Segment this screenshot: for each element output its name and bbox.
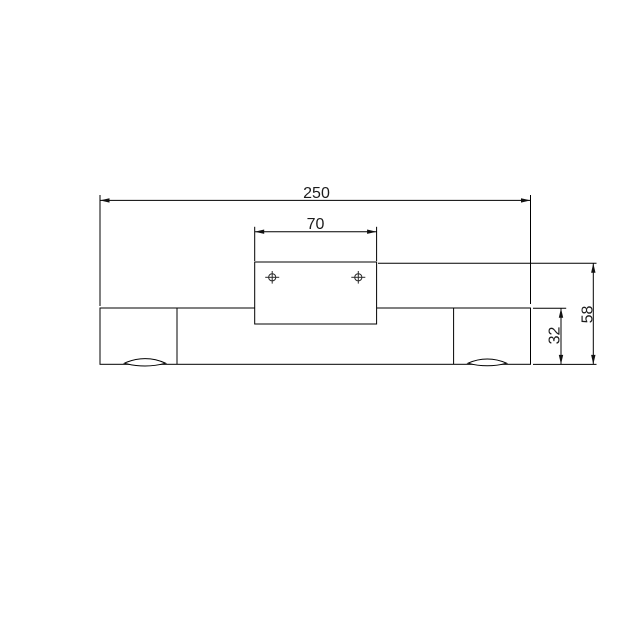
svg-text:70: 70 bbox=[307, 216, 325, 233]
svg-text:58: 58 bbox=[579, 306, 596, 324]
svg-text:250: 250 bbox=[303, 185, 330, 202]
svg-text:32: 32 bbox=[547, 327, 564, 345]
